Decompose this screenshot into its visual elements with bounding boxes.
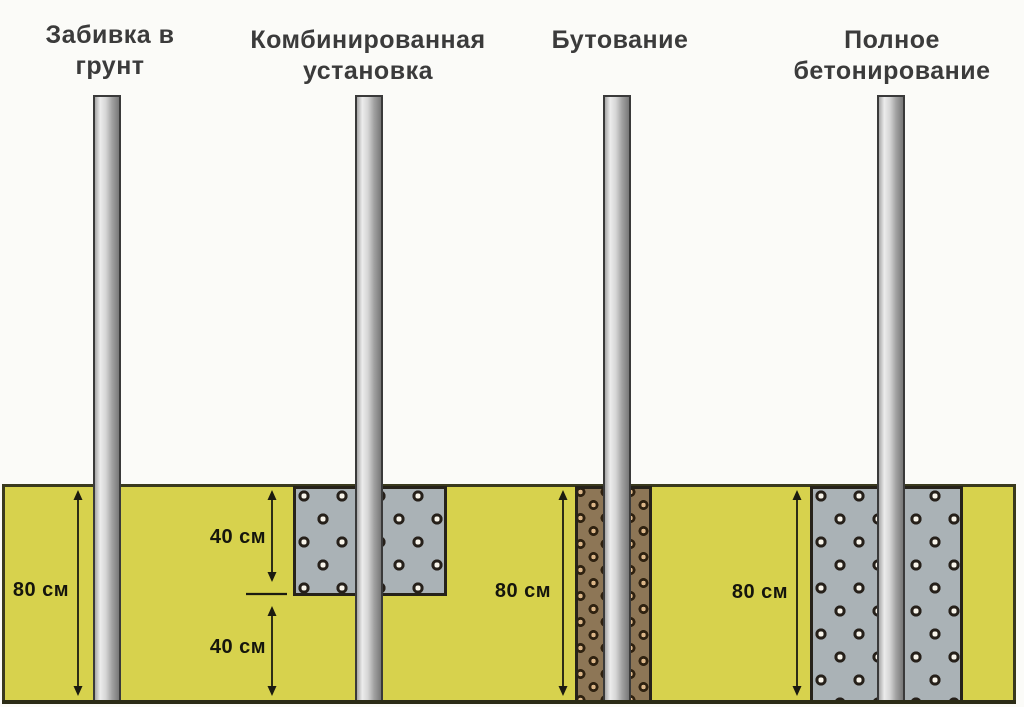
fence-post-4 — [877, 95, 905, 702]
depth-label-method2-upper-40cm: 40 см — [200, 526, 276, 549]
fence-post-2 — [355, 95, 383, 702]
depth-label-method3-80cm: 80 см — [485, 580, 561, 603]
method-title-combined-installation: Комбинированная установка — [218, 25, 518, 86]
fence-post-3 — [603, 95, 631, 702]
fence-post-1 — [93, 95, 121, 702]
method-title-drive-into-ground: Забивка в грунт — [10, 20, 210, 81]
depth-label-method4-80cm: 80 см — [722, 581, 798, 604]
installation-diagram: Забивка в грунт Комбинированная установк… — [0, 0, 1024, 707]
depth-label-method2-lower-40cm: 40 см — [200, 636, 276, 659]
ground-bottom-border — [2, 700, 1016, 704]
depth-label-method1-80cm: 80 см — [3, 579, 79, 602]
method-title-rubble-backfill: Бутование — [495, 25, 745, 56]
method-title-full-concreting: Полное бетонирование — [767, 25, 1017, 86]
